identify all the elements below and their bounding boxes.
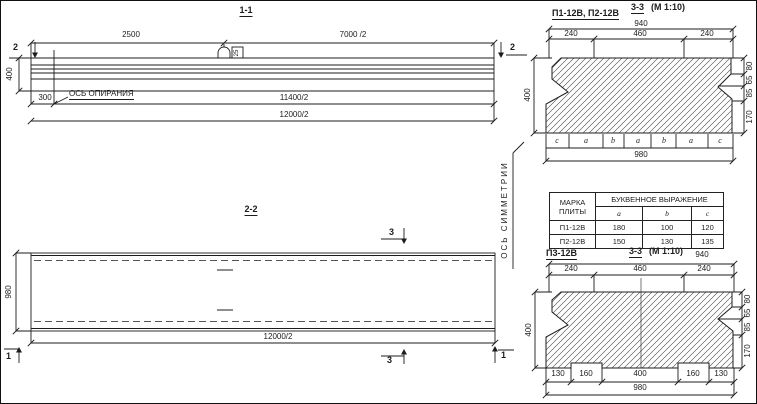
table-col-c: c bbox=[692, 207, 724, 221]
letter-dim-a3: a bbox=[689, 137, 693, 145]
section-3-3-title-bottom: 3-3 bbox=[629, 247, 642, 258]
letter-dim-c1: c bbox=[555, 137, 559, 145]
dim-400-bottom: 400 bbox=[633, 370, 646, 378]
dim-85-b: 85 bbox=[744, 323, 752, 332]
dim-240-right-a: 240 bbox=[700, 30, 713, 38]
dim-400-s33b: 400 bbox=[525, 323, 533, 336]
cut-mark-1-left: 1 bbox=[6, 352, 11, 361]
dim-12000-2-s11: 12000/2 bbox=[280, 111, 309, 119]
dim-130-left: 130 bbox=[551, 370, 564, 378]
letter-dim-a2: a bbox=[636, 137, 640, 145]
table-header-mark: МАРКА ПЛИТЫ bbox=[550, 193, 596, 221]
dim-11400-2: 11400/2 bbox=[280, 94, 308, 102]
row-p1-b: 100 bbox=[643, 221, 692, 235]
dim-940-bottom: 940 bbox=[695, 251, 708, 259]
section-3-3-title-top: 3-3 bbox=[631, 3, 644, 14]
dim-170-b: 170 bbox=[744, 344, 752, 357]
dim-940-top: 940 bbox=[634, 20, 647, 28]
row-p2-c: 135 bbox=[692, 235, 724, 249]
dim-12000-2-s22: 12000/2 bbox=[264, 333, 293, 341]
cut-mark-2-left: 2 bbox=[13, 43, 18, 52]
support-axis-label: ОСЬ ОПИРАНИЯ bbox=[69, 90, 134, 100]
dim-460-b: 460 bbox=[633, 265, 646, 273]
letter-dim-c2: c bbox=[718, 137, 722, 145]
row-p1-c: 120 bbox=[692, 221, 724, 235]
dim-300: 300 bbox=[38, 94, 51, 102]
cut-mark-3-bottom: 3 bbox=[387, 356, 392, 365]
dim-240-right-b: 240 bbox=[697, 265, 710, 273]
cut-mark-3-top: 3 bbox=[389, 228, 394, 237]
symmetry-axis-label: ОСЬ СИММЕТРИИ bbox=[501, 161, 509, 258]
cut-mark-1-right: 1 bbox=[501, 351, 506, 360]
section-3-3-scale-bottom: (М 1:10) bbox=[649, 247, 683, 256]
cut-mark-2-right: 2 bbox=[510, 43, 515, 52]
dim-7000-2: 7000 /2 bbox=[340, 31, 367, 39]
table-col-b: b bbox=[643, 207, 692, 221]
section-1-1-title: 1-1 bbox=[239, 6, 252, 17]
dim-400-s11: 400 bbox=[6, 67, 14, 80]
row-p1-a: 180 bbox=[596, 221, 643, 235]
dim-65-b: 65 bbox=[744, 309, 752, 318]
dim-980-s33a: 980 bbox=[634, 151, 647, 159]
dim-980-s33b: 980 bbox=[633, 384, 646, 392]
dim-85-a: 85 bbox=[746, 89, 754, 98]
table-header-expression: БУКВЕННОЕ ВЫРАЖЕНИЕ bbox=[596, 193, 724, 207]
dim-400-s33a: 400 bbox=[524, 88, 532, 101]
letter-values-table: МАРКА ПЛИТЫ БУКВЕННОЕ ВЫРАЖЕНИЕ a b c П1… bbox=[549, 192, 724, 249]
dim-80-a: 80 bbox=[746, 62, 754, 71]
letter-dim-b1: b bbox=[611, 137, 615, 145]
plate-label-p1-p2: П1-12В, П2-12В bbox=[552, 9, 619, 20]
dim-65-a: 65 bbox=[746, 76, 754, 85]
loop-tag: 25 bbox=[234, 50, 240, 57]
letter-dim-b2: b bbox=[662, 137, 666, 145]
dim-160-right: 160 bbox=[686, 370, 699, 378]
table-col-a: a bbox=[596, 207, 643, 221]
dim-240-left-a: 240 bbox=[564, 30, 577, 38]
letter-dim-a1: a bbox=[584, 137, 588, 145]
dim-980-s22: 980 bbox=[5, 285, 13, 298]
dim-130-right: 130 bbox=[714, 370, 727, 378]
section-3-3-scale-top: (М 1:10) bbox=[651, 3, 685, 12]
dim-240-left-b: 240 bbox=[564, 265, 577, 273]
plate-label-p3: П3-12В bbox=[546, 249, 577, 260]
row-p1-mark: П1-12В bbox=[550, 221, 596, 235]
engineering-drawing-sheet: 1-1 2500 7000 /2 2 2 400 300 ОСЬ ОПИРАНИ… bbox=[0, 0, 757, 404]
dim-80-b: 80 bbox=[744, 295, 752, 304]
dim-460-a: 460 bbox=[633, 30, 646, 38]
dim-170-a: 170 bbox=[746, 110, 754, 123]
dim-2500: 2500 bbox=[122, 31, 140, 39]
section-2-2-title: 2-2 bbox=[244, 205, 257, 216]
table-row: П1-12В 180 100 120 bbox=[550, 221, 724, 235]
dim-160-left: 160 bbox=[579, 370, 592, 378]
row-p2-mark: П2-12В bbox=[550, 235, 596, 249]
